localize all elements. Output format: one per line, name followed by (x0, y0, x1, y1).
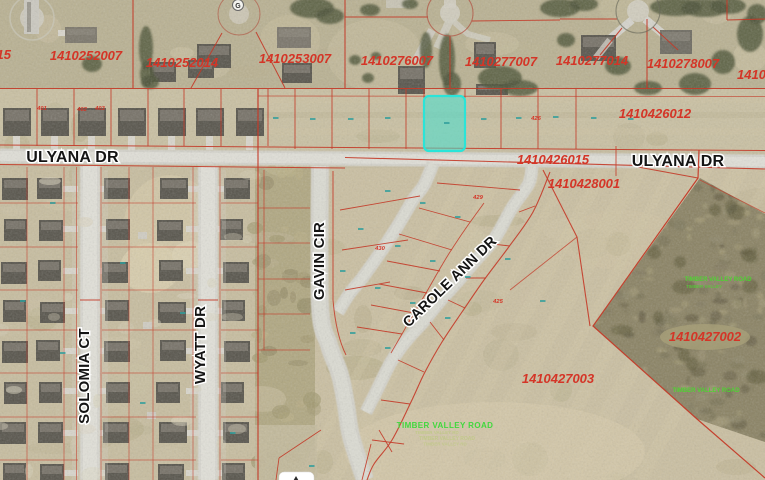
svg-text:TIMBER VALLEY ROAD: TIMBER VALLEY ROAD (672, 388, 740, 394)
svg-text:SOLOMIA CT: SOLOMIA CT (76, 328, 93, 424)
svg-text:1410253007: 1410253007 (259, 51, 332, 66)
svg-text:1410252014: 1410252014 (146, 55, 219, 70)
svg-text:TIMBER VALLEY ROAD: TIMBER VALLEY ROAD (397, 421, 494, 430)
svg-text:403: 403 (94, 106, 105, 112)
svg-text:429: 429 (472, 195, 483, 201)
svg-text:1410427003: 1410427003 (522, 371, 595, 386)
svg-text:WYATT DR: WYATT DR (192, 306, 209, 384)
svg-text:401: 401 (36, 106, 47, 112)
svg-text:1410276007: 1410276007 (361, 53, 434, 68)
svg-text:402: 402 (76, 107, 87, 113)
svg-text:426: 426 (530, 116, 541, 122)
svg-text:1410426015: 1410426015 (517, 152, 590, 167)
svg-text:1410428001: 1410428001 (548, 176, 620, 191)
svg-text:15: 15 (0, 47, 12, 62)
svg-text:GAVIN CIR: GAVIN CIR (311, 222, 328, 300)
svg-text:425: 425 (492, 299, 503, 305)
svg-text:TIMBER VALLEY: TIMBER VALLEY (686, 284, 722, 289)
svg-text:14102: 14102 (737, 67, 765, 82)
svg-text:1410252007: 1410252007 (50, 48, 123, 63)
svg-text:1410427002: 1410427002 (669, 329, 742, 344)
svg-text:TIMBER VALLEY RD: TIMBER VALLEY RD (423, 442, 467, 447)
svg-text:TIMBER VALLEY RD: TIMBER VALLEY RD (415, 430, 459, 435)
svg-text:G: G (235, 3, 241, 10)
svg-text:430: 430 (374, 246, 385, 252)
svg-text:1410277007: 1410277007 (465, 54, 538, 69)
svg-text:1410277014: 1410277014 (556, 53, 629, 68)
svg-text:1410278007: 1410278007 (647, 56, 720, 71)
svg-text:ULYANA DR: ULYANA DR (632, 153, 725, 170)
svg-text:TIMBER VALLEY ROAD: TIMBER VALLEY ROAD (684, 277, 752, 283)
svg-text:ULYANA DR: ULYANA DR (26, 149, 119, 166)
svg-text:1410426012: 1410426012 (619, 106, 692, 121)
